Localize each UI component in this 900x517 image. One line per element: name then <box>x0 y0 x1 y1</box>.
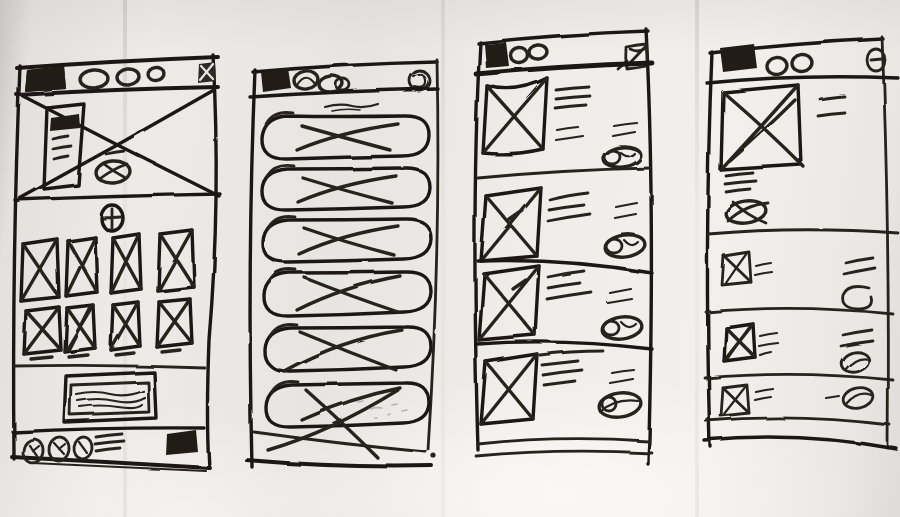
compact-row <box>705 324 893 380</box>
pill-row-with-x <box>262 112 429 159</box>
thumbnail-with-x <box>65 305 95 357</box>
wireframe-screen-2-list <box>246 60 438 467</box>
screen-frame-right <box>428 60 438 450</box>
checkbox-with-x <box>722 252 751 285</box>
banner-squiggle-line <box>76 391 143 395</box>
screen-frame-left <box>250 70 255 467</box>
text-tick-lines <box>759 333 778 355</box>
meta-lines <box>841 330 873 346</box>
thumbnail-with-x <box>24 307 61 359</box>
hero-bottom-line <box>15 194 220 200</box>
close-box-icon <box>198 62 216 83</box>
item-divider <box>477 342 652 349</box>
tab-oval <box>510 47 528 63</box>
x-scribble <box>297 276 400 312</box>
text-lines <box>548 193 590 221</box>
detail-image-placeholder <box>721 85 804 170</box>
screen-frame-bottom-2 <box>476 451 652 456</box>
logo-block <box>720 44 757 72</box>
meta-lines-right <box>615 203 637 218</box>
header-bar <box>250 68 438 97</box>
caption-squiggle-2 <box>332 109 360 111</box>
oval-scribble-button <box>601 314 644 341</box>
wireframe-screen-4-detail <box>704 37 898 449</box>
card-text-line <box>54 156 68 159</box>
oval-scribble-button <box>604 232 647 259</box>
x-scribble <box>297 124 398 150</box>
hero-image-placeholder <box>15 90 220 201</box>
meta-lines <box>844 258 875 274</box>
card-text-line <box>53 136 68 139</box>
logo-block-fill <box>25 66 66 92</box>
nav-logo-block <box>166 430 198 455</box>
meta-lines-right <box>613 123 637 136</box>
text-tick-lines <box>755 389 773 400</box>
text-lines <box>725 173 756 192</box>
thumbnail-with-x <box>111 234 141 293</box>
thumbnail-with-x <box>481 354 537 424</box>
logo-block <box>261 68 291 92</box>
wireframe-screen-3-feed <box>475 29 652 464</box>
header-bar <box>476 42 652 74</box>
checkbox-with-x <box>724 324 755 361</box>
thumbnail-caption-line <box>69 355 88 357</box>
meta-lines <box>826 396 839 398</box>
add-circle-button <box>101 205 123 231</box>
oval-scribble-button <box>602 145 642 169</box>
plus-icon <box>103 209 121 228</box>
x-scribble <box>284 330 402 371</box>
pen-dot <box>431 453 436 458</box>
checkbox-with-x <box>721 385 749 416</box>
thumbnail-with-x <box>158 230 194 291</box>
x-scribble <box>299 226 398 255</box>
screen-frame-top <box>17 57 218 68</box>
meta-lines-right <box>610 370 634 383</box>
thumbnail-with-x <box>481 188 541 261</box>
thumbnail-with-x <box>66 237 97 296</box>
tab-oval-small <box>147 66 165 81</box>
sketch-canvas <box>0 0 900 517</box>
compact-row <box>706 252 893 314</box>
thumbnail-caption-line <box>162 350 180 352</box>
tab-oval <box>791 53 813 73</box>
oval-scribble-button <box>598 390 643 420</box>
text-lines <box>540 351 603 385</box>
tab-oval-large <box>79 69 108 89</box>
section-divider <box>708 230 898 234</box>
pill-row-with-x <box>264 269 431 316</box>
thumbnail-grid <box>21 230 194 359</box>
compact-row <box>721 385 875 416</box>
card-text-line <box>53 146 71 149</box>
pill-row-with-x <box>266 381 429 458</box>
minus-circle-icon <box>867 49 885 71</box>
row-divider <box>705 374 893 380</box>
item-divider <box>478 168 650 178</box>
pill-row-with-x <box>262 165 430 210</box>
x-scribble <box>298 176 396 203</box>
screen-frame-left <box>14 66 20 459</box>
card-title-bar <box>50 114 80 131</box>
text-tick-lines <box>755 263 772 275</box>
oval-button-with-x <box>725 198 768 225</box>
logo-block <box>484 42 509 68</box>
oval-scribble <box>841 385 875 411</box>
header-bar <box>707 44 898 83</box>
caption-lines <box>818 96 845 116</box>
tab-oval <box>528 44 547 60</box>
screen-frame-right <box>646 29 651 464</box>
screen-frame-top <box>478 31 648 43</box>
caption-squiggle <box>325 104 378 107</box>
screen-frame-bottom <box>246 460 432 466</box>
screen-frame-left <box>707 52 712 446</box>
thumbnail-with-x <box>157 299 192 352</box>
ad-banner <box>13 365 205 432</box>
text-lines <box>555 87 590 108</box>
wireframe-screen-1-home <box>12 55 220 471</box>
clock-oval-icon <box>73 436 94 460</box>
feed-item <box>481 351 642 424</box>
menu-lines-icon <box>95 434 124 451</box>
feed-item <box>477 266 652 349</box>
banner-divider-bottom <box>13 428 204 432</box>
screen-frame-right <box>882 37 888 448</box>
screen-frame-bottom-2 <box>704 437 897 449</box>
banner-squiggle-line <box>80 405 142 408</box>
screen-frame-bottom <box>706 418 890 425</box>
screen-frame-bottom-2 <box>254 432 426 452</box>
screen-frame-left <box>475 42 480 450</box>
meta-lines-right <box>608 289 632 303</box>
tab-oval <box>293 69 319 90</box>
x-scribble <box>721 85 804 170</box>
feed-item <box>478 78 650 178</box>
tab-oval-medium <box>116 68 140 86</box>
banner-squiggle-line <box>78 398 145 402</box>
thumbnail-caption-line <box>116 353 134 355</box>
pill-row-with-x <box>263 216 431 262</box>
oval-scribble <box>843 287 872 309</box>
play-oval-button <box>95 160 131 185</box>
banner-divider-top <box>14 365 205 368</box>
feed-item <box>478 188 652 273</box>
thumbnail-with-x <box>111 302 140 355</box>
tab-oval <box>766 56 788 76</box>
pill-row-with-x <box>265 324 431 371</box>
text-lines <box>547 271 591 299</box>
thumbnail-with-x <box>483 78 547 154</box>
oval-scribble <box>839 349 871 374</box>
thumbnail-with-x <box>479 266 539 340</box>
thumbnail-with-x <box>21 239 59 301</box>
header-divider <box>707 77 898 83</box>
screen-frame-bottom <box>478 439 648 444</box>
screen-frame-right <box>208 55 217 468</box>
banner-inner-box <box>70 382 149 415</box>
meta-lines <box>556 127 583 140</box>
thumbnail-caption-line <box>31 357 52 359</box>
